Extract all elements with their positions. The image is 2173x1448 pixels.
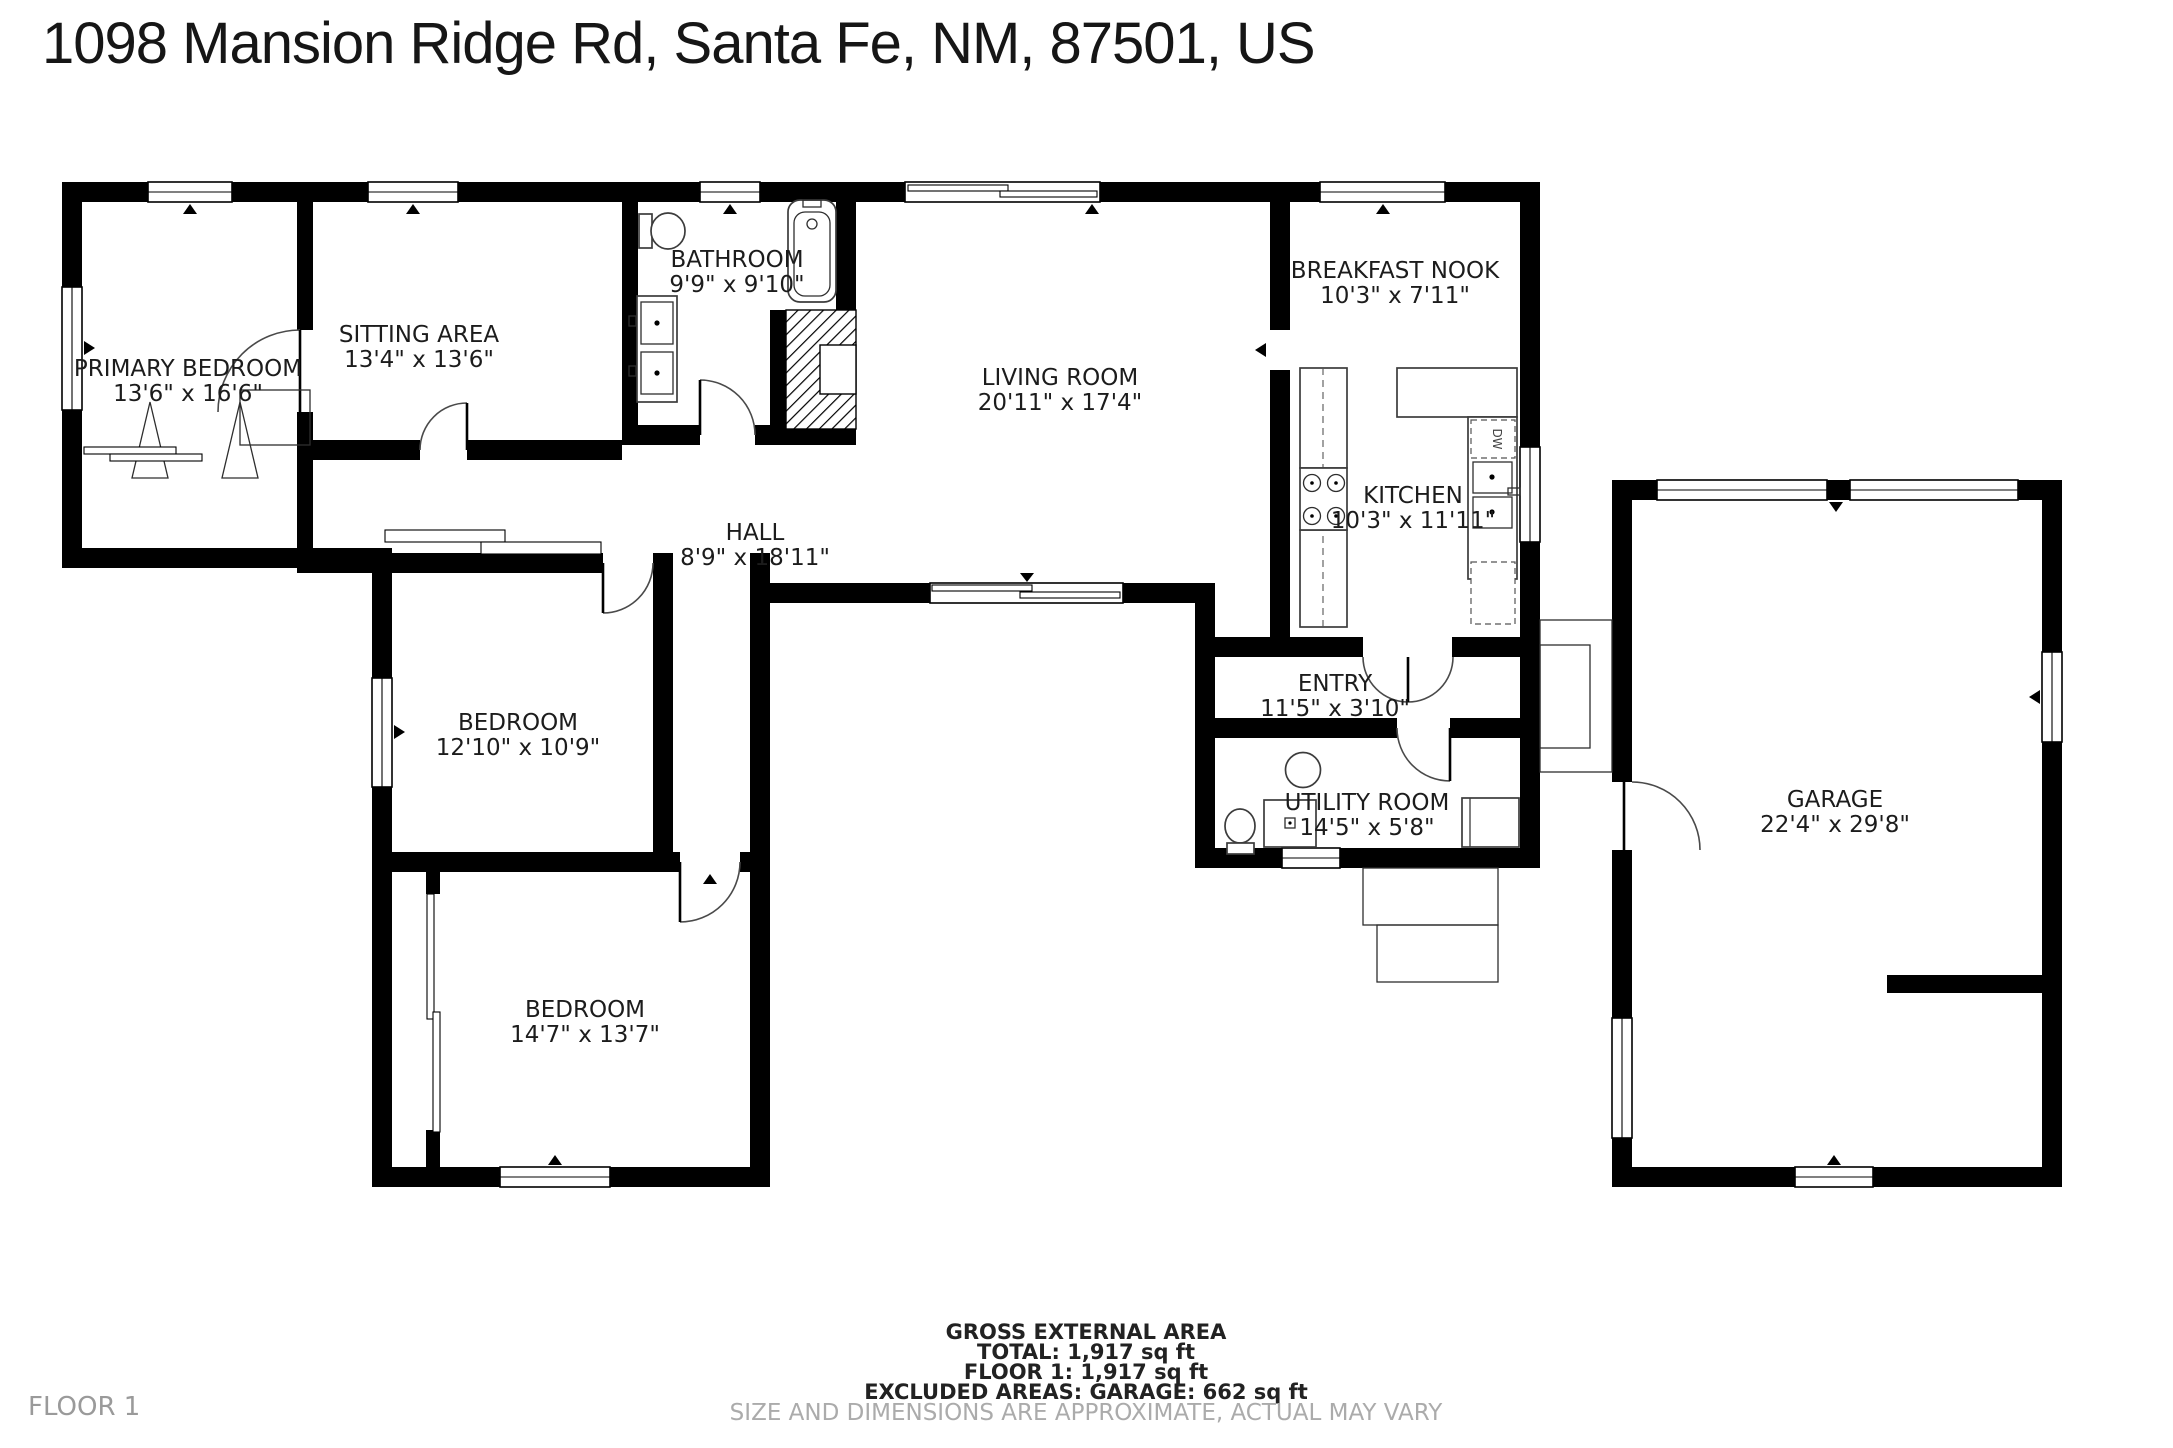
floor-label: FLOOR 1: [28, 1392, 140, 1422]
room-label-primary-bedroom: PRIMARY BEDROOM13'6" x 16'6": [74, 357, 302, 406]
bathroom-toilet-icon: [639, 213, 685, 249]
room-label-garage: GARAGE22'4" x 29'8": [1760, 788, 1910, 837]
bathroom-vanity-icon: [629, 296, 677, 402]
fireplace-icon: [786, 310, 856, 429]
door-bathroom: [700, 380, 755, 435]
footer-disclaimer: SIZE AND DIMENSIONS ARE APPROXIMATE, ACT…: [730, 1400, 1443, 1426]
room-label-hall: HALL8'9" x 18'11": [680, 521, 830, 570]
floorplan-page: DW: [0, 0, 2173, 1448]
room-label-bathroom: BATHROOM9'9" x 9'10": [669, 248, 804, 297]
room-label-entry: ENTRY11'5" x 3'10": [1260, 672, 1410, 721]
room-label-breakfast-nook: BREAKFAST NOOK10'3" x 7'11": [1291, 259, 1499, 308]
room-label-sitting-area: SITTING AREA13'4" x 13'6": [339, 323, 499, 372]
room-label-living-room: LIVING ROOM20'11" x 17'4": [978, 366, 1142, 415]
door-utility-room: [1397, 728, 1450, 781]
door-sitting-area: [420, 403, 467, 450]
room-label-bedroom-middle: BEDROOM12'10" x 10'9": [436, 711, 600, 760]
sliding-door: [930, 583, 1123, 603]
room-label-kitchen: KITCHEN10'3" x 11'11": [1331, 484, 1495, 533]
utility-toilet-icon: [1225, 809, 1255, 854]
room-label-bedroom-lower: BEDROOM14'7" x 13'7": [510, 998, 660, 1047]
hall-closet-icon: [385, 530, 601, 554]
wardrobe-triangles-icon: [132, 402, 258, 478]
page-title: 1098 Mansion Ridge Rd, Santa Fe, NM, 875…: [42, 10, 1315, 77]
dryer-icon: [1462, 798, 1519, 847]
lower-bedroom-closet-icon: [427, 894, 440, 1132]
door-garage-side: [1624, 782, 1700, 850]
steps-icon: [1363, 868, 1498, 982]
porch-icon: [1540, 620, 1612, 772]
room-label-utility-room: UTILITY ROOM14'5" x 5'8": [1285, 791, 1450, 840]
door-bedroom-lower: [680, 862, 740, 922]
water-heater-icon: [1286, 753, 1321, 788]
svg-text:DW: DW: [1490, 428, 1504, 449]
door-bedroom-middle: [603, 563, 653, 613]
floorplan-drawing: DW: [0, 0, 2173, 1448]
